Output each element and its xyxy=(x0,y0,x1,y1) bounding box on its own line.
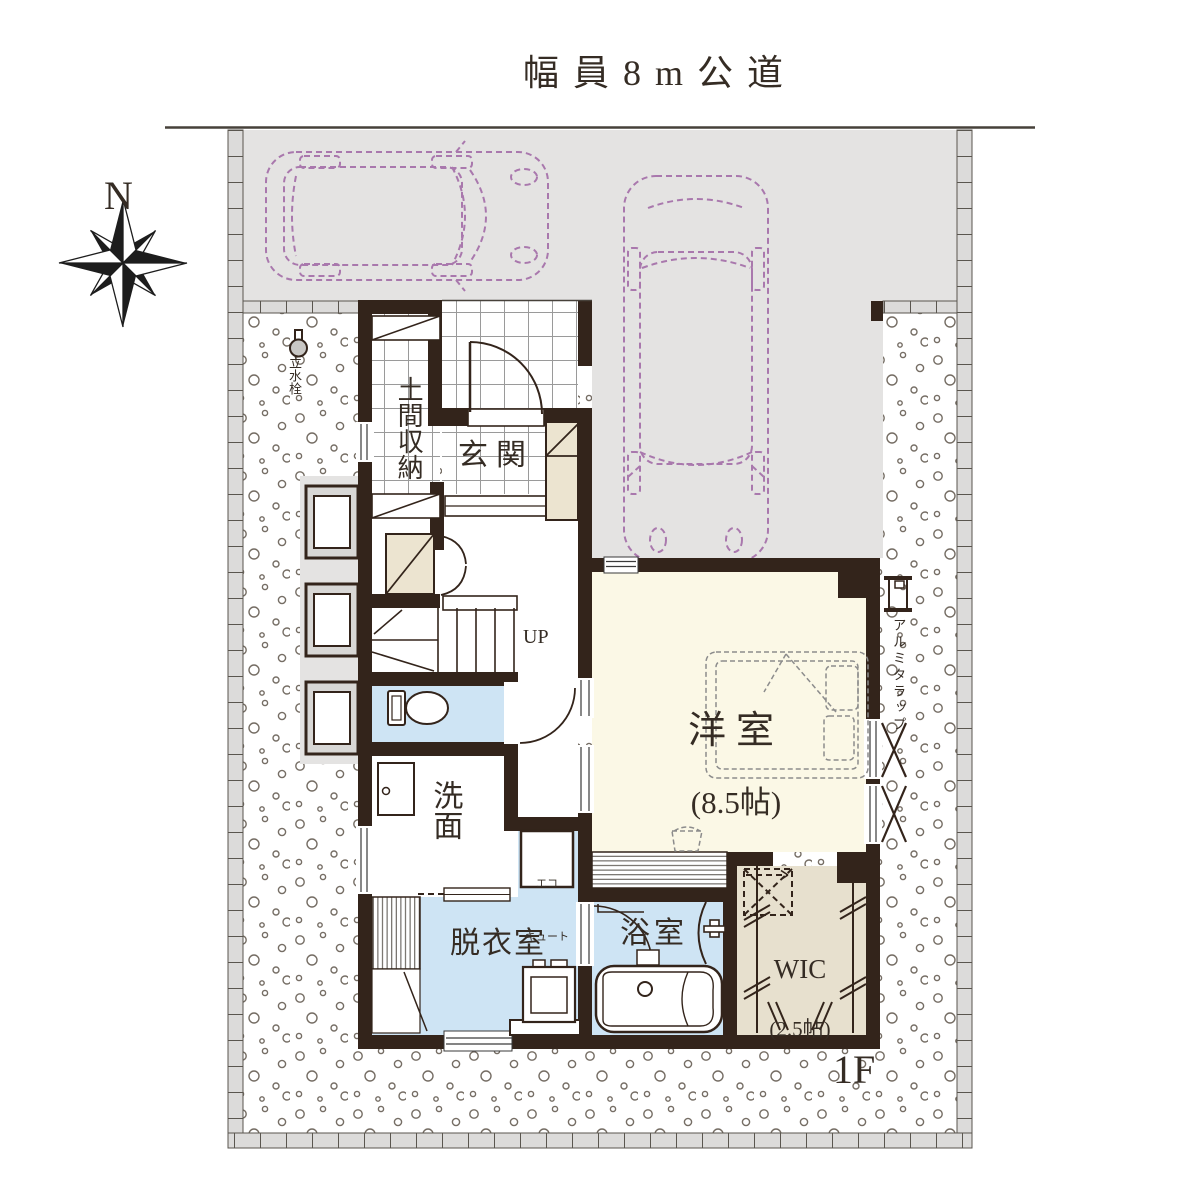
room-label-western-room: 洋室 (8.5帖) xyxy=(622,676,850,837)
room-label-bathroom: 浴室 xyxy=(620,918,688,950)
room-label-dressing-room: 脱衣室 xyxy=(450,928,546,960)
room-label-wic: WIC (2.5帖) xyxy=(740,920,860,1058)
water-tap-label: 立水栓 xyxy=(287,356,301,395)
road-label: 幅員8m公道 xyxy=(523,54,797,93)
room-label-doma-storage: 土間収納 xyxy=(394,376,422,480)
compass-rose-icon xyxy=(59,199,187,327)
floor-plan-drawing xyxy=(0,0,1200,1200)
floor-label: 1F xyxy=(833,1048,875,1091)
outdoor-unit-icons xyxy=(300,476,362,764)
ladder-label: アルミタラップ xyxy=(890,618,905,734)
stairs-up-label: UP xyxy=(523,627,549,649)
room-label-washroom: 洗面 xyxy=(428,780,460,840)
vanity-icon xyxy=(378,763,414,815)
room-label-entrance: 玄関 xyxy=(458,440,534,472)
floor-plan-page: 幅員8m公道 N 土間収納 玄関 UP 洗面 エコ キュート 脱衣室 浴室 洋室… xyxy=(0,0,1200,1200)
compass-north-label: N xyxy=(104,174,133,217)
